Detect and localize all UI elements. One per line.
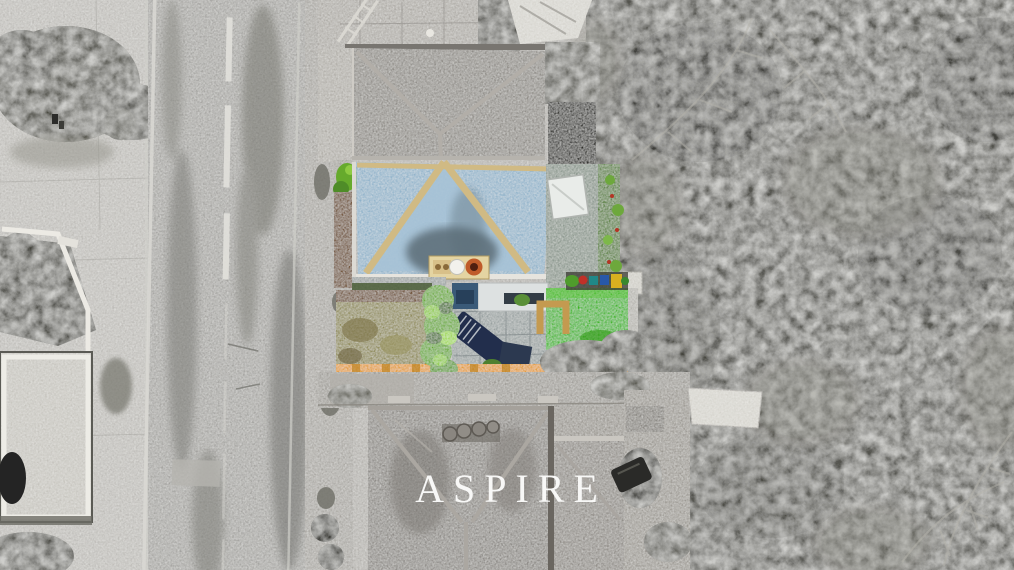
yard-shadow <box>548 102 596 166</box>
roof-gutter-left <box>352 162 356 278</box>
bottom-chimney-pots <box>442 421 500 442</box>
soot-stain-upper <box>450 188 486 264</box>
watermark-logo: ASPIRE <box>411 469 607 509</box>
white-flat-roof <box>688 388 762 428</box>
small-outbuilding <box>626 406 664 432</box>
bark-strip-left <box>334 192 352 288</box>
neighbor-roof-top <box>318 48 545 162</box>
plant-pots-row <box>565 272 629 290</box>
cluttered-yard <box>545 42 600 104</box>
front-roof <box>352 48 545 160</box>
garden-lamp <box>426 29 434 37</box>
yard-foliage-2 <box>644 522 692 562</box>
patio <box>448 283 548 376</box>
foliage-shadow <box>100 358 132 414</box>
road-repair-patch <box>172 459 221 487</box>
bush-round <box>104 108 136 140</box>
street-bush-1 <box>311 514 339 542</box>
tree-shadow <box>10 136 114 168</box>
front-roof-eaves <box>352 156 545 160</box>
skylight-white <box>547 175 588 220</box>
chimney-pot-white <box>450 260 465 275</box>
chimney <box>429 256 489 279</box>
hedge-line <box>352 283 432 291</box>
bark-bed <box>336 290 428 303</box>
subject-property <box>333 160 652 384</box>
patio-plant-2 <box>514 294 530 306</box>
side-passage <box>318 48 352 162</box>
street-bush-2 <box>318 544 344 570</box>
flat-roof-building <box>0 352 92 525</box>
concrete-post <box>628 288 638 332</box>
aerial-property-photo: ASPIRE <box>0 0 1014 570</box>
